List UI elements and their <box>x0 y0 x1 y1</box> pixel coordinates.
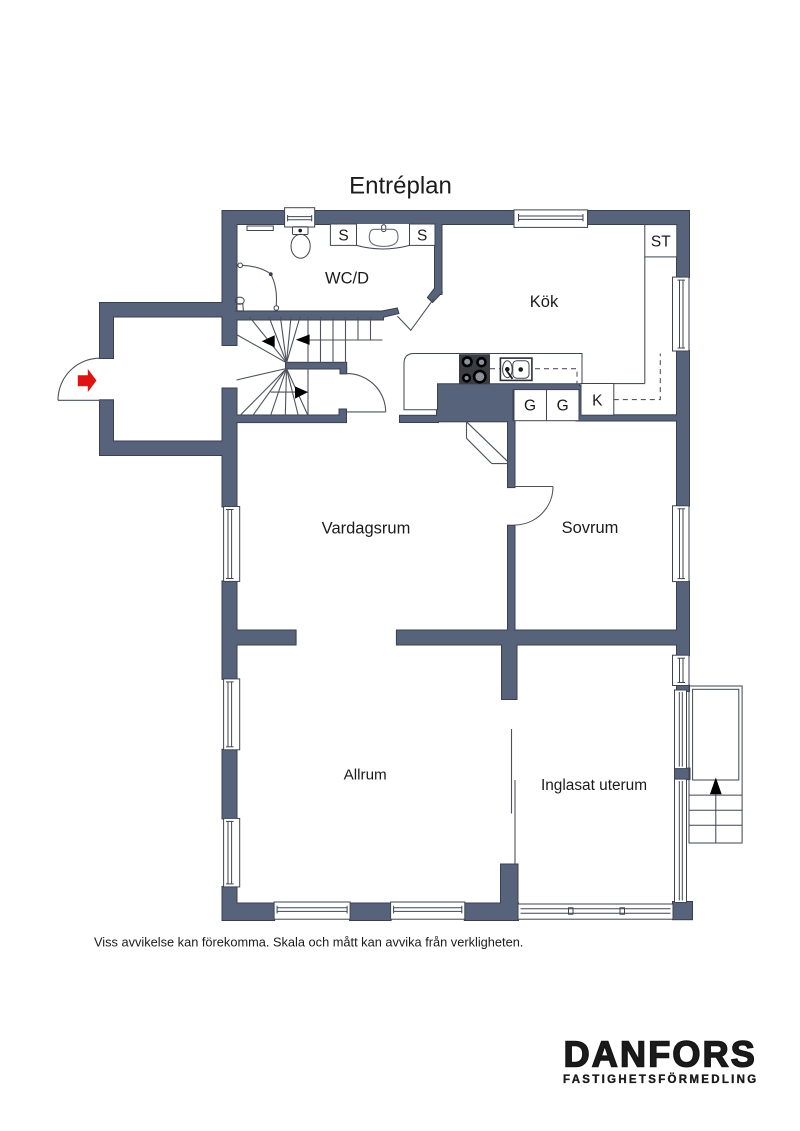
svg-text:WC/D: WC/D <box>325 270 369 288</box>
svg-text:S: S <box>417 228 427 245</box>
svg-text:DANFORS: DANFORS <box>564 1034 757 1075</box>
svg-text:S: S <box>338 228 348 245</box>
svg-text:Vardagsrum: Vardagsrum <box>322 520 411 538</box>
svg-text:ST: ST <box>651 233 671 250</box>
svg-text:Sovrum: Sovrum <box>562 519 619 537</box>
svg-text:Inglasat uterum: Inglasat uterum <box>541 777 647 794</box>
svg-text:Kök: Kök <box>530 293 559 311</box>
svg-text:Entréplan: Entréplan <box>349 173 452 200</box>
svg-text:Viss avvikelse kan förekomma.: Viss avvikelse kan förekomma. Skala och … <box>94 934 523 949</box>
svg-text:G: G <box>557 398 569 415</box>
svg-text:Allrum: Allrum <box>344 767 387 784</box>
svg-text:K: K <box>592 392 603 409</box>
svg-text:G: G <box>524 398 536 415</box>
svg-text:FASTIGHETSFÖRMEDLING: FASTIGHETSFÖRMEDLING <box>563 1073 759 1086</box>
